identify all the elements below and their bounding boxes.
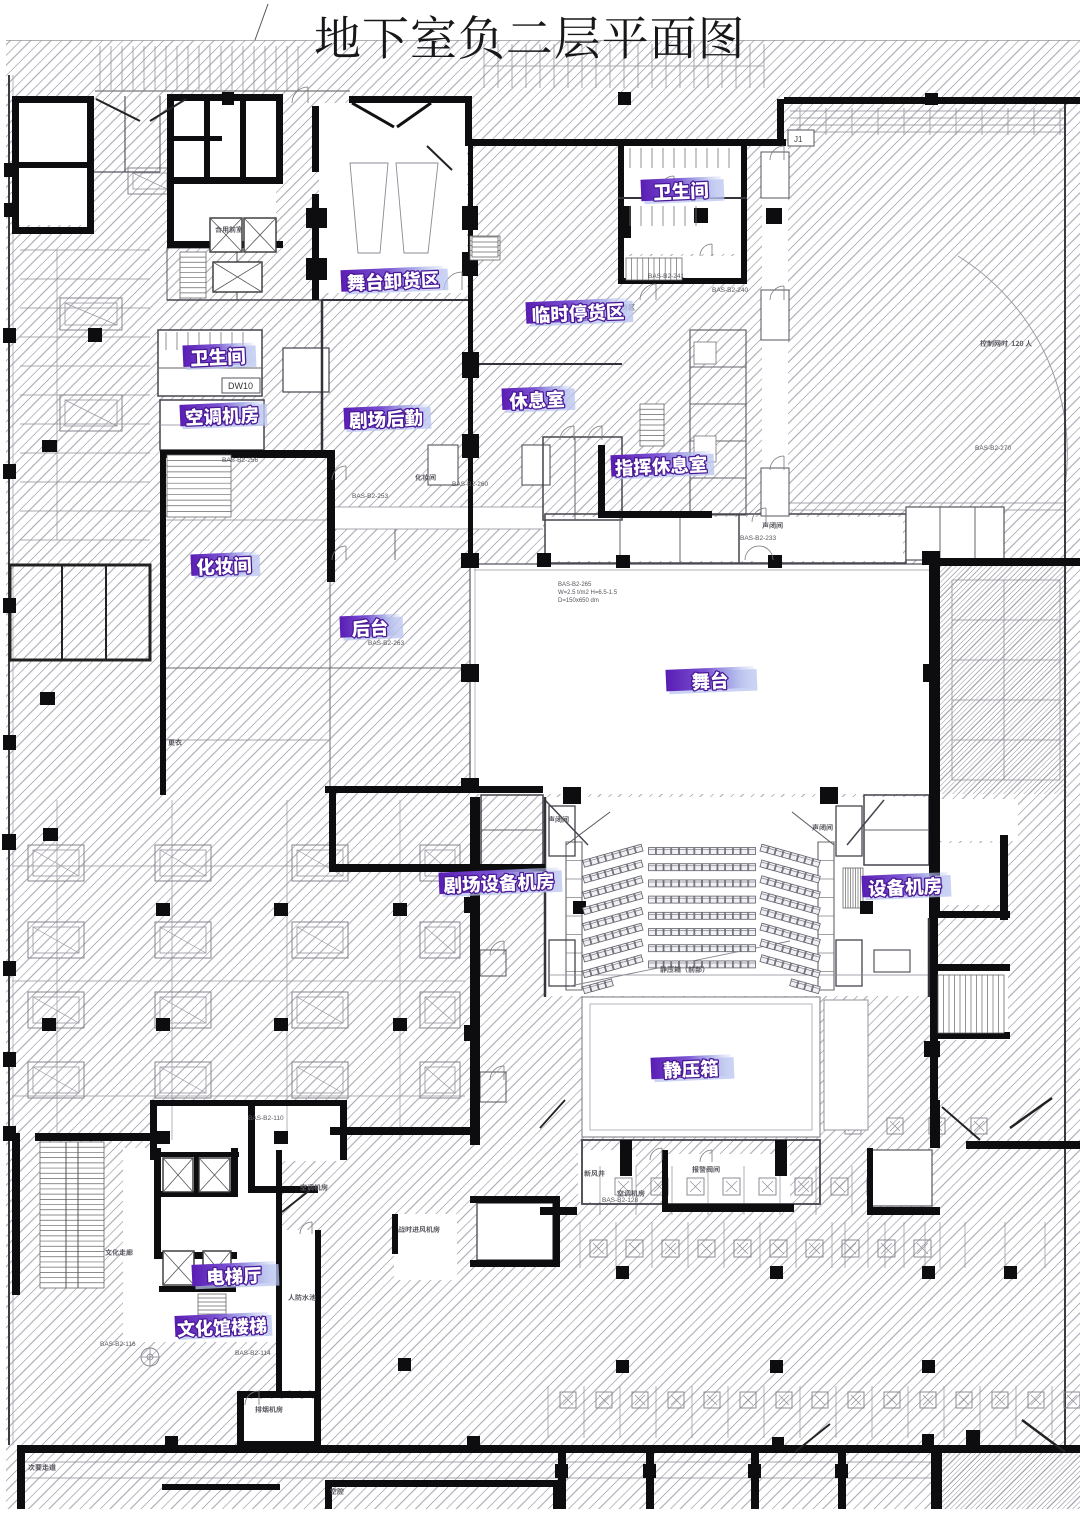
svg-text:BAS-B2-260: BAS-B2-260 (452, 481, 489, 488)
svg-text:D=150x650 dm: D=150x650 dm (558, 598, 599, 604)
svg-text:BAS-B2-110: BAS-B2-110 (248, 1115, 284, 1122)
svg-text:BAS-B2-114: BAS-B2-114 (235, 1350, 271, 1357)
svg-text:BAS-B2-233: BAS-B2-233 (740, 535, 777, 542)
svg-text:DW10: DW10 (228, 381, 253, 391)
svg-text:BAS-B2-116: BAS-B2-116 (100, 1341, 136, 1348)
svg-text:W=2.5 t/m2 H=6.5-1.5: W=2.5 t/m2 H=6.5-1.5 (558, 590, 618, 596)
svg-text:BAS-B2-270: BAS-B2-270 (975, 445, 1012, 452)
svg-text:BAS-B2-265: BAS-B2-265 (558, 582, 592, 588)
svg-text:BAS-B2-256: BAS-B2-256 (222, 457, 259, 464)
svg-text:J1: J1 (794, 135, 803, 144)
svg-text:BAS-B2-253: BAS-B2-253 (352, 493, 389, 500)
svg-text:BAS-B2-128: BAS-B2-128 (602, 1197, 639, 1204)
svg-text:BAS-B2-241: BAS-B2-241 (648, 273, 685, 280)
svg-text:BAS-B2-263: BAS-B2-263 (368, 640, 405, 647)
svg-text:BAS-B2-240: BAS-B2-240 (712, 287, 749, 294)
